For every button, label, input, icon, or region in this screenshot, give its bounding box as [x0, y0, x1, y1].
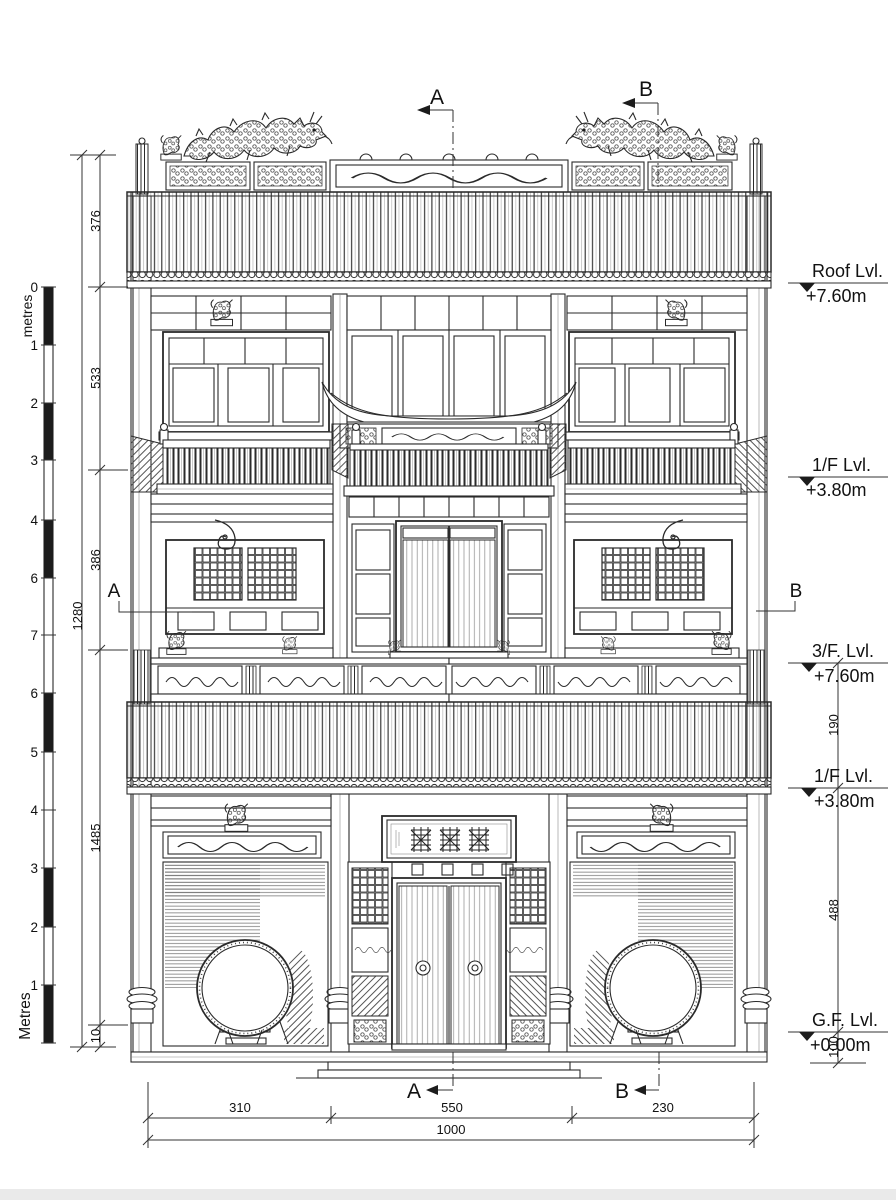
scale-tick: 2: [30, 920, 38, 935]
section-letter-b: B: [615, 1080, 629, 1103]
dim-left-seg: 1485: [88, 824, 103, 853]
lattice-window: [248, 548, 296, 600]
scale-tick: 3: [30, 453, 38, 468]
dim-left-seg: 376: [88, 210, 103, 232]
level-elevation: +3.80m: [806, 480, 867, 500]
level-marker-roof: Roof Lvl. +7.60m: [788, 261, 888, 306]
level-name: 1/F Lvl.: [812, 455, 871, 475]
level-name: 1/F Lvl.: [814, 766, 873, 786]
main-roof-upper: [127, 192, 771, 288]
scale-tick: 5: [30, 745, 38, 760]
scale-tick: 4: [30, 803, 38, 818]
scale-tick: 2: [30, 396, 38, 411]
dim-left-seg: 386: [88, 549, 103, 571]
level-name: Roof Lvl.: [812, 261, 883, 281]
scale-tick: 3: [30, 861, 38, 876]
dim-left-seg: 533: [88, 367, 103, 389]
dim-left-seg: 10: [88, 1029, 103, 1043]
scale-tick: 0: [30, 280, 38, 295]
upper-centre-bay: [347, 296, 551, 422]
scale-unit-top: metres: [19, 295, 35, 338]
dim-right-seg: 190: [826, 714, 841, 736]
level-elevation: +7.60m: [806, 286, 867, 306]
scale-tick: 1: [30, 338, 38, 353]
ridge-lion-figure: [161, 135, 181, 160]
metric-scale-bar: metres Metres 0 1 2 3 4 6 7 6 5 4 3 2 1: [17, 280, 56, 1043]
section-letter-b: B: [639, 78, 653, 101]
scale-tick: 1: [30, 978, 38, 993]
dim-bottom-seg: 230: [652, 1100, 674, 1115]
section-letter-a: A: [108, 581, 121, 602]
section-letter-a: A: [407, 1080, 421, 1103]
dim-bottom-seg: 550: [441, 1100, 463, 1115]
plaque-character: [440, 827, 460, 852]
scale-tick: 6: [30, 571, 38, 586]
main-roof-lower: [127, 702, 771, 794]
scale-tick: 7: [30, 628, 38, 643]
level-elevation: +3.80m: [814, 791, 875, 811]
level-name: 3/F. Lvl.: [812, 641, 874, 661]
dim-bottom-total: 1000: [437, 1122, 466, 1137]
level-marker-3f: 3/F. Lvl. +7.60m: [788, 641, 888, 686]
scale-unit-bottom: Metres: [17, 992, 34, 1040]
level-name: G.F. Lvl.: [812, 1010, 878, 1030]
level-marker-1f-upper: 1/F Lvl. +3.80m: [788, 455, 888, 500]
section-letter-b: B: [790, 581, 803, 602]
dim-bottom-seg: 310: [229, 1100, 251, 1115]
plaque-character: [469, 827, 489, 852]
base-plinth-steps: [131, 1052, 767, 1078]
main-entrance-doors: [392, 878, 506, 1050]
dim-left-total: 1280: [70, 602, 85, 631]
lattice-window: [194, 548, 242, 600]
facade-elevation-svg: A B A B A B 1280 376 533 386 1485 10 190…: [0, 0, 896, 1200]
section-letter-a: A: [430, 86, 444, 109]
level-marker-gf: G.F. Lvl. +0.00m: [788, 1010, 888, 1055]
scale-tick: 6: [30, 686, 38, 701]
level-elevation: +0.00m: [810, 1035, 871, 1055]
ridge-dragon-ornament: [184, 112, 332, 162]
bottom-dimension-chain: 310 550 230 1000: [143, 1082, 759, 1148]
elevation-drawing-sheet: A B A B A B 1280 376 533 386 1485 10 190…: [0, 0, 896, 1200]
scan-shadow-strip: [0, 1189, 896, 1200]
level-marker-1f-lower: 1/F Lvl. +3.80m: [788, 766, 888, 811]
right-dimension-chain: 190 488 100: [810, 658, 866, 1068]
level-elevation: +7.60m: [814, 666, 875, 686]
plaque-character: [411, 827, 431, 852]
scale-tick: 4: [30, 513, 38, 528]
ridge-center: [330, 154, 568, 192]
dim-right-seg: 488: [826, 899, 841, 921]
